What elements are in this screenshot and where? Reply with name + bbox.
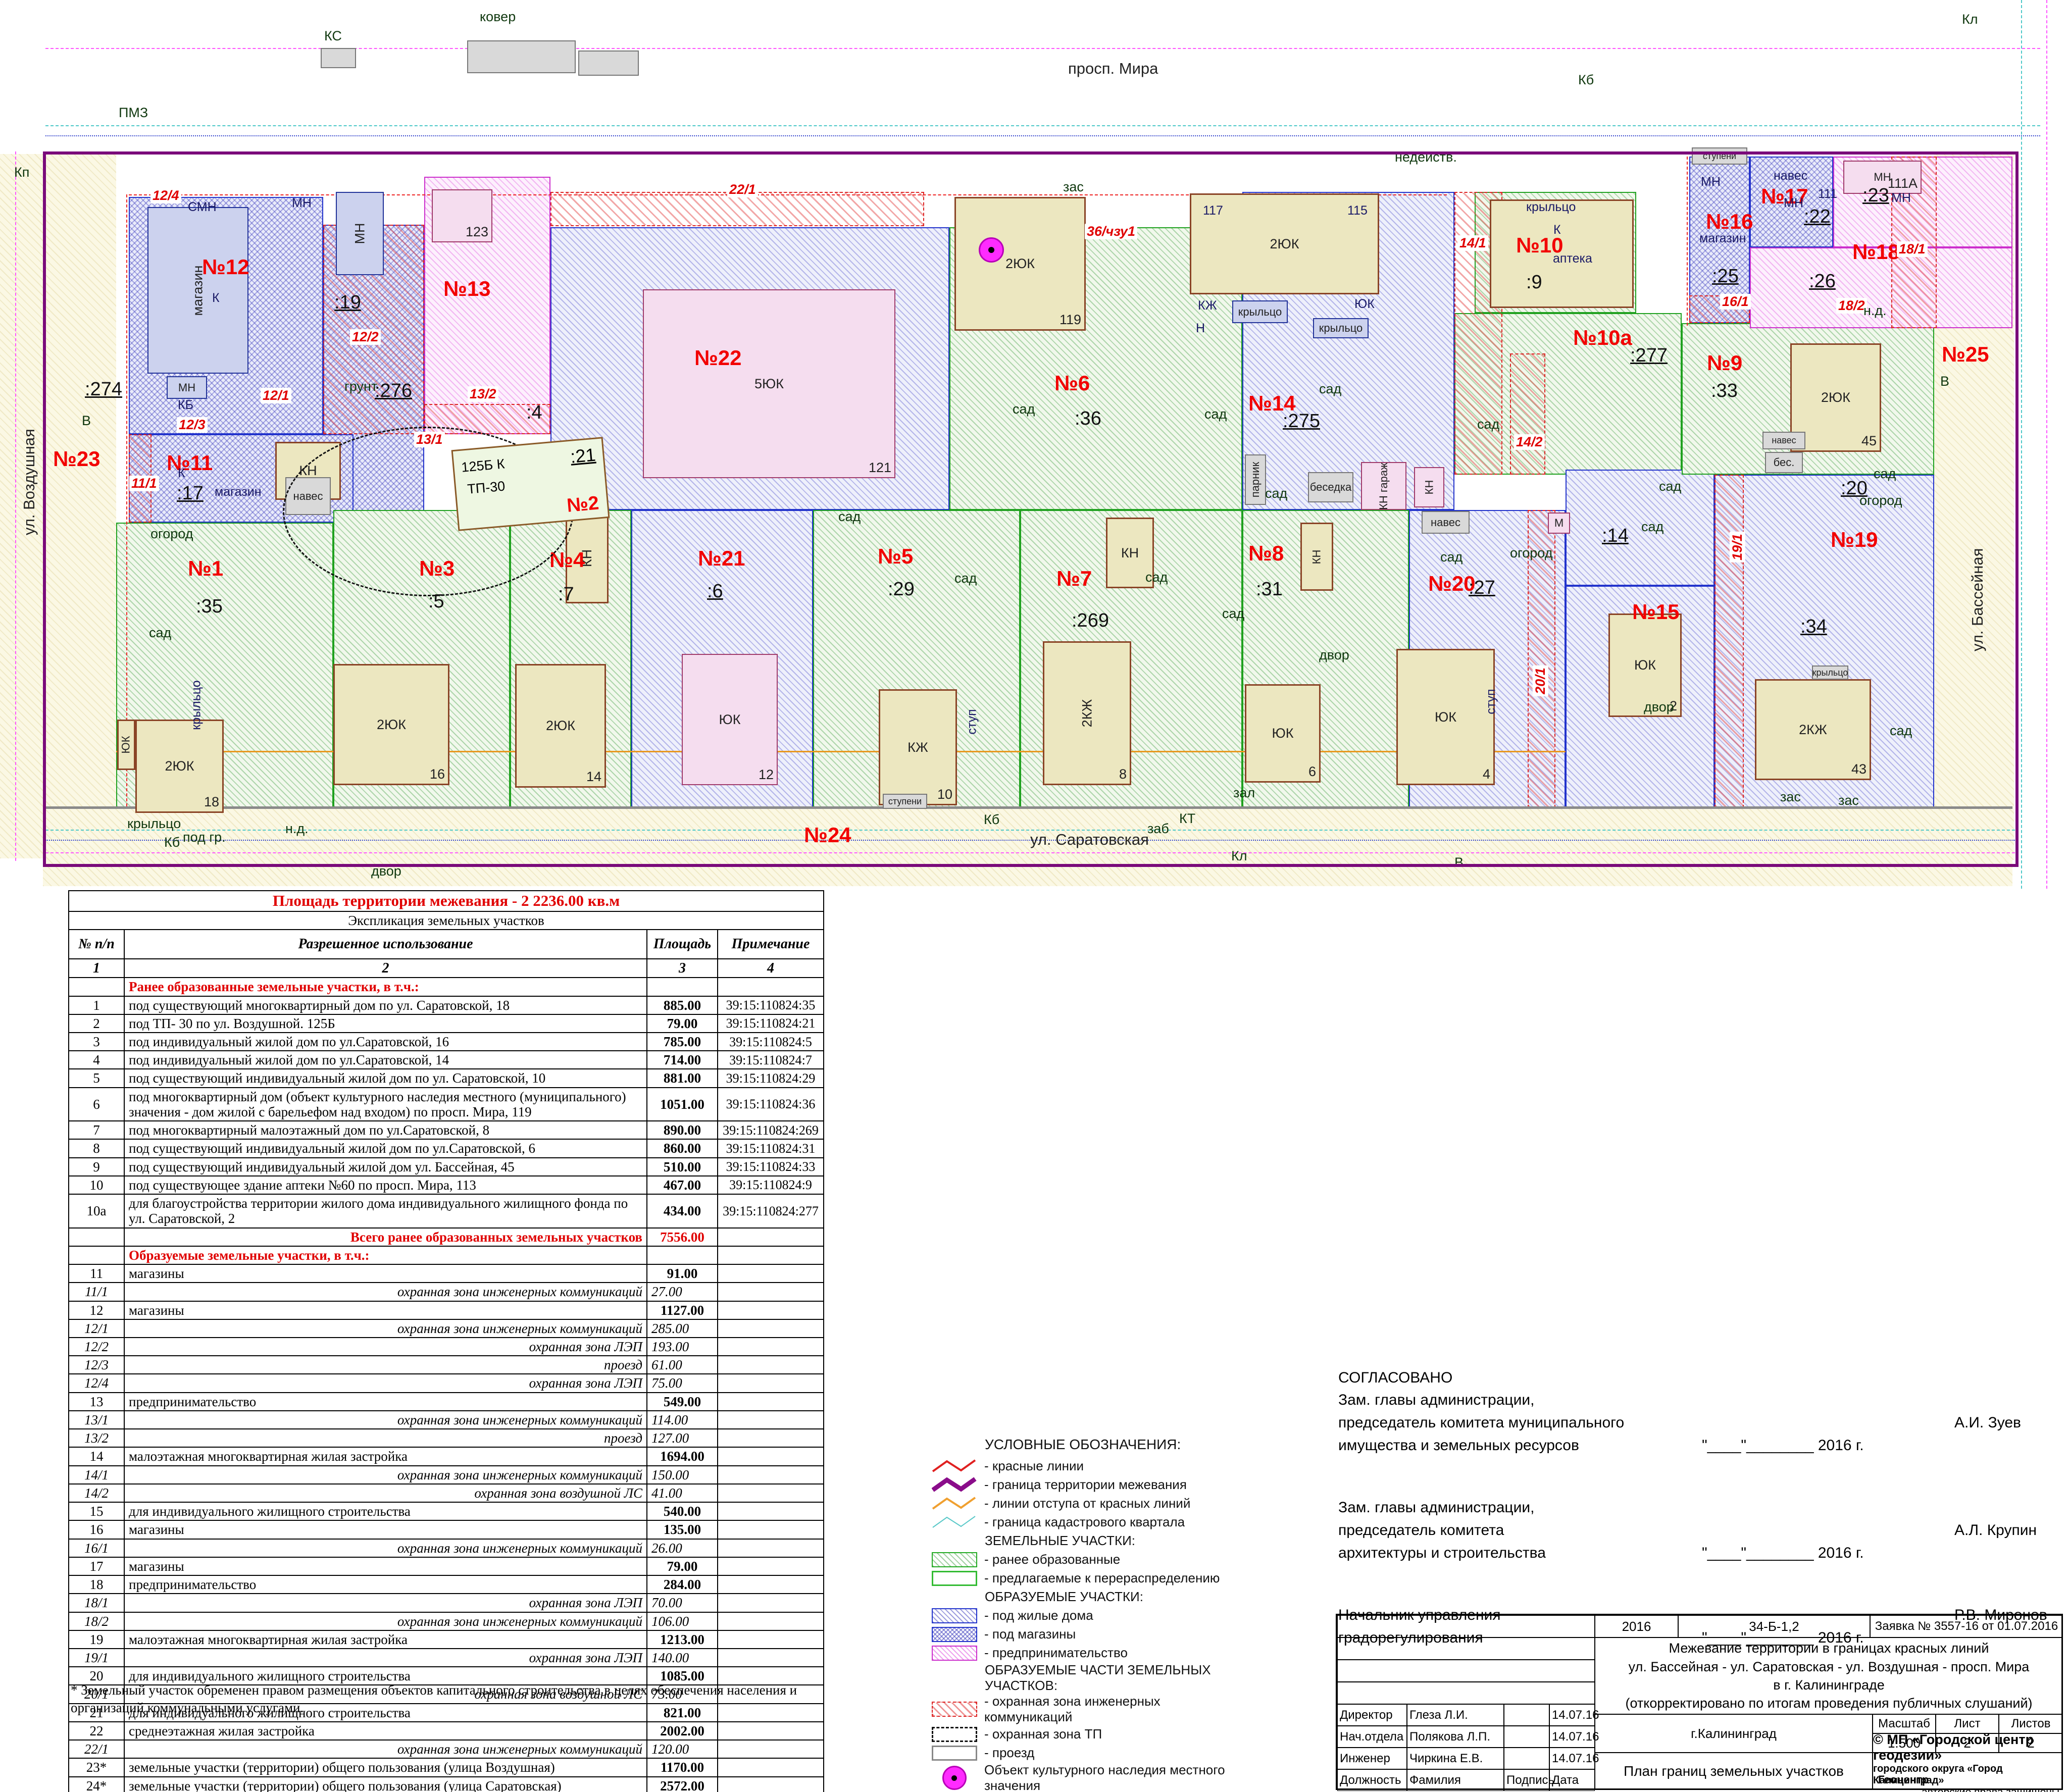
- approval-signature-block: Зам. главы администрации,председатель ко…: [1338, 1392, 2055, 1475]
- legend-item: - охранная зона ТП: [930, 1725, 1233, 1744]
- map-label: Кл: [1962, 12, 1978, 27]
- building-number: 10: [937, 787, 952, 802]
- table-subrow: 22/1охранная зона инженерных коммуникаци…: [69, 1740, 824, 1758]
- map-label: зас: [1838, 793, 1859, 808]
- stamp-role-cell: [1504, 1704, 1549, 1726]
- building-number: 111А: [1888, 176, 1918, 191]
- legend-label: - линии отступа от красных линий: [984, 1496, 1190, 1511]
- map-label: :36: [1075, 408, 1101, 430]
- parcel-2-number: №2: [566, 492, 600, 517]
- stamp-role-cell: 14.07.16: [1549, 1726, 1595, 1748]
- parcel-zone: [43, 808, 2012, 886]
- map-label: крыльцо: [127, 816, 181, 832]
- stamp-sheet-label: Лист: [1936, 1714, 1999, 1733]
- map-label: ступ: [1484, 689, 1499, 714]
- stamp-role-cell: [1504, 1748, 1549, 1769]
- stamp-role-cell: Подпись: [1504, 1769, 1549, 1791]
- stamp-role-cell: Полякова Л.П.: [1407, 1726, 1504, 1748]
- map-label: 111: [1818, 187, 1837, 201]
- map-label: МН: [1891, 191, 1911, 206]
- approval-role-line: Зам. главы администрации,: [1338, 1392, 1534, 1409]
- map-label: №19: [1831, 528, 1878, 552]
- stamp-sheets-label: Листов: [1999, 1714, 2063, 1733]
- table-subrow: 12/1охранная зона инженерных коммуникаци…: [69, 1319, 824, 1338]
- map-label: №12: [202, 255, 249, 279]
- map-label: 18/2: [1836, 298, 1867, 314]
- map-label: сад: [1013, 401, 1035, 417]
- building-number: 121: [869, 460, 891, 476]
- map-label: К: [178, 466, 185, 481]
- stamp-role-cell: 14.07.16: [1549, 1748, 1595, 1769]
- building-label: 2ЮК: [165, 758, 194, 774]
- map-label: сад: [1265, 486, 1287, 501]
- building: 2КЖ8: [1043, 641, 1131, 785]
- building: КЖ10: [879, 689, 957, 805]
- map-label: :19: [334, 292, 361, 314]
- table-row: 9под существующий индивидуальный жилой д…: [69, 1158, 824, 1176]
- map-label: №21: [698, 546, 745, 571]
- map-label: :274: [85, 379, 122, 400]
- map-label: заб: [1147, 821, 1169, 837]
- stamp-doc-title: План границ земельных участков: [1595, 1753, 1873, 1790]
- legend-label: - предпринимательство: [984, 1645, 1128, 1661]
- map-label: №11: [167, 451, 213, 475]
- building-number: 12: [759, 767, 774, 783]
- map-label: №16: [1706, 210, 1753, 234]
- building-label: М: [1554, 517, 1563, 530]
- map-label: :17: [177, 483, 204, 504]
- table-row: 2под ТП- 30 по ул. Воздушной. 125Б79.003…: [69, 1014, 824, 1033]
- legend-label: - проезд: [984, 1745, 1034, 1761]
- building: ступени: [883, 794, 927, 809]
- map-label: МН: [1701, 175, 1721, 189]
- map-label: №1: [188, 556, 223, 581]
- building-label: КН: [1423, 480, 1436, 495]
- building-label: ступени: [1703, 151, 1736, 162]
- map-label: 36/чзу1: [1085, 224, 1137, 239]
- table-row: 6под многоквартирный дом (объект культур…: [69, 1088, 824, 1121]
- map-label: МН: [292, 196, 312, 211]
- parcel-zone: [1566, 470, 1714, 586]
- map-label: сад: [954, 571, 977, 586]
- map-label: КТ: [1179, 811, 1195, 827]
- map-label: :26: [1809, 271, 1836, 292]
- table-header-row: № п/пРазрешенное использованиеПлощадьПри…: [69, 930, 824, 959]
- legend-label: - предлагаемые к перераспределению: [984, 1570, 1220, 1586]
- map-label: В: [1940, 374, 1949, 389]
- map-label: огород: [1510, 545, 1552, 561]
- legend-title: УСЛОВНЫЕ ОБОЗНАЧЕНИЯ:: [985, 1437, 1233, 1453]
- map-label: сад: [1440, 549, 1462, 565]
- legend: УСЛОВНЫЕ ОБОЗНАЧЕНИЯ: - красные линии- г…: [930, 1437, 1233, 1792]
- building: навес: [1422, 511, 1470, 534]
- map-label: №15: [1632, 600, 1680, 624]
- map-label: ЮК: [1354, 297, 1375, 312]
- map-label: огород: [150, 526, 193, 542]
- zz-purple-icon: [930, 1477, 978, 1493]
- map-label: :25: [1712, 266, 1739, 287]
- table-section-row: Ранее образованные земельные участки, в …: [69, 978, 824, 996]
- approval-role-line: Зам. главы администрации,: [1338, 1499, 1534, 1516]
- map-label: К: [212, 291, 220, 305]
- map-label: 12/2: [350, 329, 381, 345]
- building: навес: [1762, 432, 1805, 449]
- tp30-address: 125Б К: [461, 456, 505, 475]
- table-row: 18предпринимательство284.00: [69, 1575, 824, 1594]
- map-label: сад: [1222, 606, 1244, 622]
- building-label: крыльцо: [1812, 668, 1848, 678]
- legend-label: - охранная зона ТП: [984, 1726, 1102, 1742]
- approval-role-line: председатель комитета: [1338, 1522, 1504, 1539]
- swatch-icon: [930, 1646, 978, 1661]
- map-label: Кб: [164, 835, 180, 850]
- map-label: :7: [558, 584, 574, 605]
- building-label: 2ЮК: [1821, 390, 1850, 405]
- stamp-role-cell: Нач.отдела: [1337, 1726, 1407, 1748]
- map-label: №13: [443, 277, 491, 301]
- heritage-icon: [930, 1766, 978, 1790]
- map-label: сад: [838, 509, 861, 525]
- map-label: №22: [694, 346, 742, 370]
- approval-role-line: имущества и земельных ресурсов: [1338, 1437, 1579, 1454]
- map-line: [1687, 157, 1688, 326]
- stamp-project-line: в г. Калининграде: [1773, 1676, 1885, 1694]
- map-label: №18: [1852, 240, 1900, 264]
- building: крыльцо: [1812, 665, 1848, 680]
- stamp-scale-label: Масштаб: [1873, 1714, 1936, 1733]
- swatch-icon: [930, 1727, 978, 1742]
- map-label: ковер: [480, 9, 516, 25]
- building: ЮК: [117, 720, 135, 770]
- stamp-role-cell: Фамилия: [1407, 1769, 1504, 1791]
- building-label: КН: [1310, 549, 1323, 564]
- stamp-project-line: Межевание территории в границах красных …: [1669, 1639, 1989, 1657]
- map-label: :276: [375, 380, 412, 402]
- map-label: :4: [526, 402, 542, 424]
- map-label: СМН: [188, 200, 217, 215]
- map-label: крыльцо: [1526, 200, 1576, 215]
- map-label: н.д.: [1863, 303, 1887, 319]
- table-row: 4под индивидуальный жилой дом по ул.Сара…: [69, 1051, 824, 1069]
- map-line: [45, 135, 2040, 136]
- table-subrow: 14/2охранная зона воздушной ЛС41.00: [69, 1484, 824, 1502]
- map-label: :35: [196, 596, 223, 618]
- table-subrow: 13/2проезд127.00: [69, 1429, 824, 1447]
- parcel-zone: [0, 154, 116, 858]
- map-label: :34: [1800, 616, 1827, 638]
- map-label: :277: [1630, 345, 1668, 367]
- table-subrow: 18/2охранная зона инженерных коммуникаци…: [69, 1612, 824, 1630]
- map-label: №23: [53, 447, 100, 471]
- map-label: огород: [1859, 493, 1902, 508]
- map-label: Кп: [14, 165, 29, 180]
- swatch-icon: [930, 1571, 978, 1586]
- building-label: 2ЮК: [1270, 236, 1299, 252]
- map-label: 115: [1347, 203, 1368, 218]
- building: ЮК12: [682, 654, 778, 785]
- protection-zone-hatch: [1510, 353, 1545, 475]
- swatch-icon: [930, 1552, 978, 1567]
- map-label: МН: [1784, 196, 1803, 211]
- table-row: 12магазины1127.00: [69, 1301, 824, 1319]
- map-label: №8: [1248, 541, 1284, 566]
- map-label: :31: [1256, 579, 1283, 600]
- table-row: 1под существующий многоквартирный дом по…: [69, 996, 824, 1014]
- map-label: №9: [1707, 351, 1742, 375]
- stamp-empty-cell: [1337, 1660, 1595, 1682]
- approval-name: А.Л. Крупин: [1954, 1522, 2037, 1539]
- table-row: 19малоэтажная многоквартирная жилая заст…: [69, 1630, 824, 1649]
- table-row: 17магазины79.00: [69, 1557, 824, 1575]
- map-label: 12/4: [150, 188, 181, 203]
- swatch-icon: [930, 1746, 978, 1761]
- map-label: 19/1: [1730, 532, 1745, 562]
- building: М: [1548, 513, 1570, 534]
- building-number: 45: [1861, 433, 1877, 449]
- swatch-icon: [930, 1608, 978, 1623]
- map-label: :275: [1283, 411, 1320, 432]
- map-label: Кл: [1231, 848, 1247, 864]
- building-label: МН: [352, 223, 368, 244]
- map-label: Н: [1196, 321, 1205, 336]
- table-subrow: 12/4охранная зона ЛЭП75.00: [69, 1374, 824, 1392]
- building: магазин: [147, 207, 248, 374]
- building-number: 119: [1060, 312, 1081, 328]
- table-subrow: 18/1охранная зона ЛЭП70.00: [69, 1594, 824, 1612]
- building-number: 43: [1851, 761, 1867, 777]
- map-label: 18/1: [1897, 241, 1928, 257]
- building: беседка: [1308, 472, 1353, 502]
- swatch-icon: [930, 1627, 978, 1642]
- building-label: КН: [1121, 545, 1139, 561]
- building-label: 2КЖ: [1799, 722, 1827, 738]
- map-label: №5: [878, 544, 913, 569]
- table-subrow: 12/3проезд61.00: [69, 1356, 824, 1374]
- map-label: :9: [1526, 272, 1542, 293]
- map-label: просп. Мира: [1068, 60, 1158, 78]
- table-section-row: Образуемые земельные участки, в т.ч.:: [69, 1246, 824, 1264]
- table-subrow: 13/1охранная зона инженерных коммуникаци…: [69, 1411, 824, 1429]
- building-label: ЮК: [120, 736, 133, 753]
- map-label: №7: [1056, 567, 1092, 591]
- stamp-project-line: ул. Бассейная - ул. Саратовская - ул. Во…: [1629, 1658, 2030, 1676]
- map-label: магазин: [215, 485, 262, 499]
- building: МН: [167, 376, 207, 399]
- map-label: №6: [1054, 371, 1090, 395]
- map-label: ул. Саратовская: [1030, 831, 1149, 849]
- building: крыльцо: [1313, 318, 1369, 338]
- legend-item: - проезд: [930, 1744, 1233, 1762]
- building: 2ЮК16: [333, 664, 449, 785]
- stamp-empty-cell: [1337, 1682, 1595, 1704]
- map-label: КБ: [178, 398, 193, 413]
- approval-signature-block: Зам. главы администрации,председатель ко…: [1338, 1499, 2055, 1582]
- building-label: навес: [1772, 435, 1796, 446]
- stamp-project: Межевание территории в границах красных …: [1595, 1637, 2063, 1714]
- legend-item: - граница территории межевания: [930, 1475, 1233, 1494]
- map-line: [43, 806, 2012, 809]
- zz-orange-icon: [930, 1496, 978, 1512]
- swatch-icon: [930, 1702, 978, 1717]
- building-number: 6: [1308, 764, 1316, 780]
- building-label: ступени: [888, 796, 922, 807]
- title-block: 2016 34-Б-1,2 Заявка № 3557-16 от 01.07.…: [1336, 1614, 2063, 1790]
- building-label: навес: [1431, 516, 1460, 529]
- map-label: К: [1553, 223, 1561, 237]
- map-label: двор: [1319, 647, 1349, 663]
- zz-cyan-icon: [930, 1514, 978, 1530]
- map-label: н.д.: [285, 821, 309, 837]
- table-subrow: 11/1охранная зона инженерных коммуникаци…: [69, 1283, 824, 1301]
- legend-label: - под жилые дома: [984, 1608, 1093, 1623]
- map-label: крыльцо: [189, 680, 204, 730]
- stamp-role-cell: Инженер: [1337, 1748, 1407, 1769]
- building-label: крыльцо: [1238, 305, 1282, 319]
- stamp-role-cell: 14.07.16: [1549, 1704, 1595, 1726]
- legend-label: - ранее образованные: [984, 1552, 1120, 1567]
- building-label: 2ЮК: [1005, 256, 1035, 272]
- legend-item: - ранее образованные: [930, 1550, 1233, 1569]
- table-subrow: 19/1охранная зона ЛЭП140.00: [69, 1649, 824, 1667]
- stamp-role-cell: Глеза Л.И.: [1407, 1704, 1504, 1726]
- building-number: 18: [204, 794, 219, 810]
- map-label: Кб: [984, 812, 999, 828]
- map-label: :269: [1072, 610, 1109, 632]
- building-number: 123: [466, 224, 488, 240]
- map-label: Кб: [1578, 72, 1594, 88]
- legend-label: - под магазины: [984, 1626, 1076, 1642]
- building-label: 2ЮК: [377, 717, 406, 733]
- building: 2КЖ43: [1755, 679, 1871, 780]
- map-label: :23: [1862, 185, 1889, 207]
- table-row: 11магазины91.00: [69, 1264, 824, 1283]
- map-line: [45, 125, 2040, 126]
- table-row: 16магазины135.00: [69, 1520, 824, 1539]
- table-total-row: Всего ранее образованных земельных участ…: [69, 1228, 824, 1246]
- map-label: сад: [1204, 406, 1227, 422]
- map-line: [45, 852, 2015, 853]
- building: МН: [336, 192, 384, 275]
- map-label: ступ: [965, 709, 980, 734]
- cadastral-map: магазинМНМН1235ЮК1212ЮК1192ЮККНкрыльцокр…: [0, 0, 2068, 889]
- map-label: ул. Воздушная: [20, 429, 38, 535]
- legend-item: - граница кадастрового квартала: [930, 1513, 1233, 1531]
- table-row: 8под существующий индивидуальный жилой д…: [69, 1139, 824, 1157]
- map-label: :14: [1602, 525, 1629, 547]
- table-subrow: 14/1охранная зона инженерных коммуникаци…: [69, 1466, 824, 1484]
- building-label: 5ЮК: [754, 376, 784, 392]
- map-label: 16/1: [1720, 294, 1751, 310]
- map-label: 20/1: [1533, 665, 1548, 696]
- table-subrow: 16/1охранная зона инженерных коммуникаци…: [69, 1539, 824, 1557]
- building: крыльцо: [1232, 300, 1288, 323]
- map-label: 14/1: [1457, 235, 1488, 251]
- map-label: грунт: [344, 379, 377, 394]
- parcel-2-tp30: 125Б К :21 ТП-30 №2: [451, 437, 610, 531]
- legend-item: - под магазины: [930, 1625, 1233, 1644]
- table-footnote: * Земельный участок обременен правом раз…: [71, 1681, 808, 1717]
- map-label: :33: [1711, 380, 1738, 402]
- map-label: навес: [1774, 169, 1807, 183]
- map-label: 12/3: [177, 417, 208, 433]
- approval-name: А.И. Зуев: [1954, 1414, 2021, 1431]
- map-label: сад: [1890, 723, 1912, 739]
- map-label: :22: [1804, 206, 1831, 228]
- map-label: недейств.: [1395, 149, 1457, 165]
- building-label: беседка: [1310, 481, 1352, 494]
- sheet: магазинМНМН1235ЮК1212ЮК1192ЮККНкрыльцокр…: [0, 0, 2068, 1792]
- map-label: КЖ: [1198, 298, 1217, 313]
- map-label: зас: [1063, 179, 1084, 195]
- legend-label: - охранная зона инженерных коммуникаций: [984, 1694, 1233, 1725]
- legend-label: - красные линии: [984, 1458, 1084, 1474]
- map-label: 22/1: [727, 182, 758, 197]
- table-colnum-row: 1234: [69, 959, 824, 978]
- map-label: В: [82, 413, 91, 429]
- map-label: 14/2: [1514, 434, 1545, 450]
- table-subtitle-row: Экспликация земельных участков: [69, 911, 824, 930]
- map-label: сад: [1659, 479, 1681, 494]
- approval-date-line: "____"________ 2016 г.: [1702, 1437, 1864, 1454]
- legend-item: - предпринимательство: [930, 1644, 1233, 1662]
- map-label: :6: [707, 581, 723, 602]
- map-label: сад: [1874, 466, 1896, 482]
- building-label: КН гараж: [1377, 463, 1390, 510]
- building-number: 4: [1483, 766, 1490, 782]
- legend-label: - граница кадастрового квартала: [984, 1514, 1185, 1530]
- building: [467, 40, 576, 73]
- map-label: зал: [1233, 785, 1255, 801]
- tp30-cadnum: :21: [570, 444, 597, 468]
- building-label: бес.: [1774, 456, 1795, 469]
- building-label: КЖ: [907, 740, 928, 755]
- building: [578, 50, 639, 76]
- building-label: МН: [178, 381, 195, 394]
- map-label: сад: [1319, 381, 1341, 397]
- building-label: парник: [1249, 462, 1262, 497]
- table-row: 15для индивидуального жилищного строител…: [69, 1502, 824, 1520]
- approval-role-line: архитектуры и строительства: [1338, 1545, 1546, 1562]
- legend-item: - линии отступа от красных линий: [930, 1494, 1233, 1513]
- tp30-label: ТП-30: [467, 478, 506, 497]
- map-label: :29: [888, 579, 915, 600]
- building: 2ЮК18: [135, 720, 224, 813]
- zz-red-icon: [930, 1458, 978, 1474]
- stamp-code: 34-Б-1,2: [1678, 1615, 1870, 1637]
- map-label: сад: [1641, 519, 1663, 535]
- building-label: ЮК: [719, 712, 740, 728]
- table-row: 10адля благоустройства территории жилого…: [69, 1194, 824, 1227]
- table-subrow: 12/2охранная зона ЛЭП193.00: [69, 1338, 824, 1356]
- map-label: №25: [1942, 342, 1989, 367]
- map-label: сад: [1145, 570, 1168, 585]
- table-row: 7под многоквартирный малоэтажный дом по …: [69, 1121, 824, 1139]
- map-label: под гр.: [183, 830, 226, 845]
- building-label: ЮК: [1272, 726, 1293, 741]
- legend-item: - охранная зона инженерных коммуникаций: [930, 1694, 1233, 1725]
- map-line: [15, 151, 16, 861]
- stamp-empty-cell: [1337, 1637, 1595, 1660]
- legend-label: - граница территории межевания: [984, 1477, 1187, 1493]
- geocentre-logo: Геоцентр: [1878, 1773, 1927, 1786]
- table-row: 22среднеэтажная жилая застройка2002.00: [69, 1722, 824, 1740]
- legend-item: - под жилые дома: [930, 1606, 1233, 1625]
- building: парник: [1245, 454, 1266, 505]
- building: ЮК6: [1245, 684, 1321, 783]
- legend-item: ОБРАЗУЕМЫЕ ЧАСТИ ЗЕМЕЛЬНЫХ УЧАСТКОВ:: [930, 1662, 1233, 1694]
- map-label: ул. Бассейная: [1969, 548, 1987, 651]
- table-row: 14малоэтажная многоквартирная жилая заст…: [69, 1447, 824, 1465]
